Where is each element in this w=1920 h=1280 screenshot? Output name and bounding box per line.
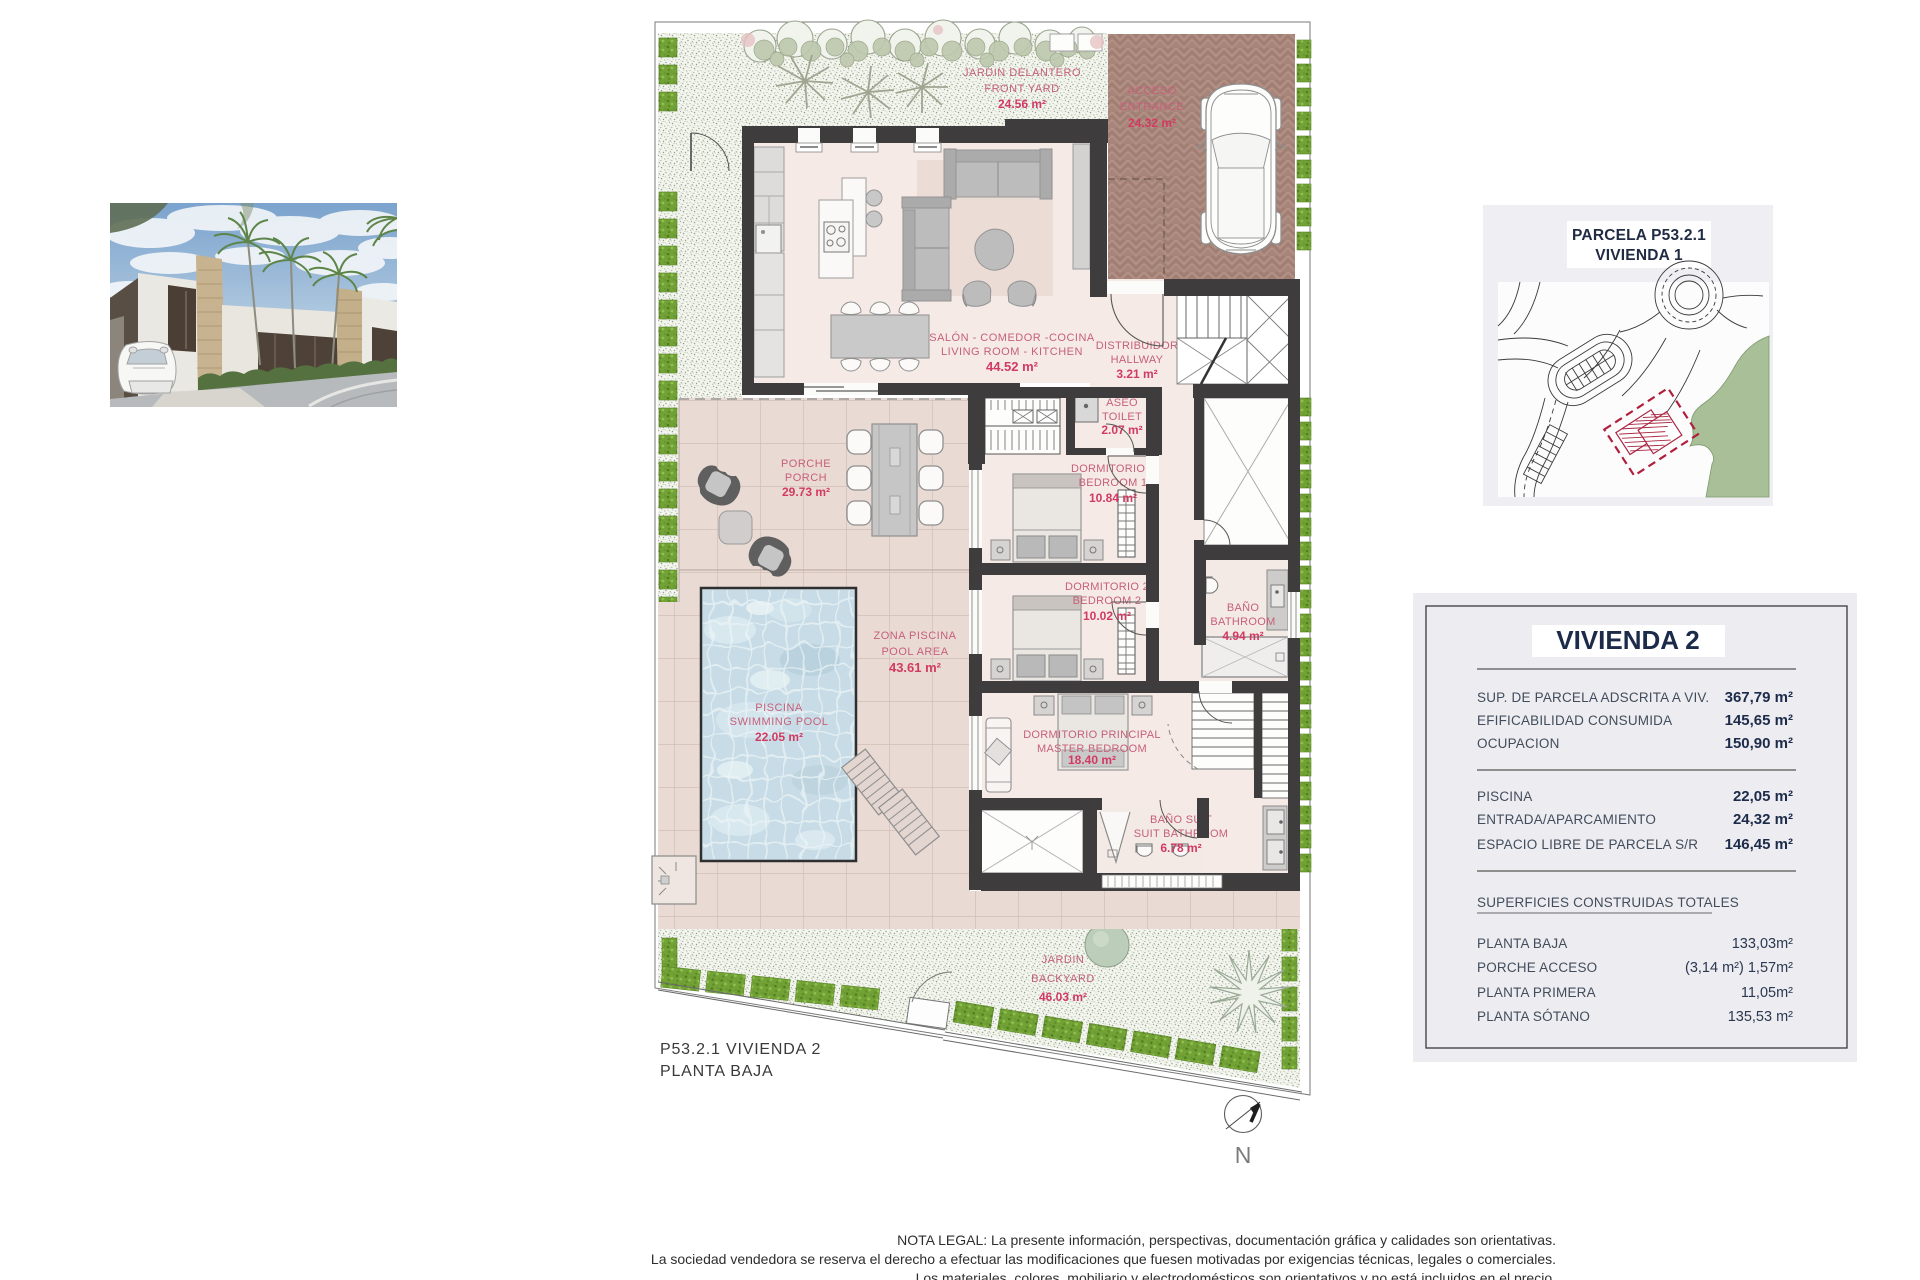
- svg-text:SUP. DE PARCELA ADSCRITA A VIV: SUP. DE PARCELA ADSCRITA A VIV.: [1477, 690, 1709, 705]
- svg-text:PISCINA: PISCINA: [1477, 789, 1532, 804]
- svg-text:EFIFICABILIDAD CONSUMIDA: EFIFICABILIDAD CONSUMIDA: [1477, 713, 1672, 728]
- svg-text:N: N: [1235, 1142, 1252, 1168]
- svg-text:La sociedad vendedora se reser: La sociedad vendedora se reserva el dere…: [651, 1251, 1556, 1267]
- svg-text:146,45 m²: 146,45 m²: [1725, 836, 1793, 853]
- svg-text:24.32 m²: 24.32 m²: [1128, 116, 1176, 130]
- svg-text:(3,14 m²) 1,57m²: (3,14 m²) 1,57m²: [1685, 960, 1793, 976]
- svg-text:BATHROOM: BATHROOM: [1210, 616, 1275, 628]
- svg-text:4.94 m²: 4.94 m²: [1222, 629, 1263, 643]
- svg-text:PLANTA PRIMERA: PLANTA PRIMERA: [1477, 985, 1596, 1000]
- svg-text:2.07 m²: 2.07 m²: [1101, 423, 1142, 437]
- svg-text:PARCELA P53.2.1: PARCELA P53.2.1: [1572, 227, 1706, 244]
- svg-text:6.78 m²: 6.78 m²: [1160, 841, 1201, 855]
- svg-text:133,03m²: 133,03m²: [1732, 936, 1793, 952]
- svg-text:44.52 m²: 44.52 m²: [986, 359, 1039, 374]
- svg-text:11,05m²: 11,05m²: [1741, 985, 1793, 1001]
- svg-text:NOTA LEGAL: La presente inform: NOTA LEGAL: La presente información, per…: [897, 1232, 1556, 1248]
- svg-text:135,53 m²: 135,53 m²: [1728, 1009, 1793, 1025]
- svg-text:367,79 m²: 367,79 m²: [1725, 689, 1793, 706]
- svg-text:ENTRADA/APARCAMIENTO: ENTRADA/APARCAMIENTO: [1477, 812, 1656, 827]
- svg-text:150,90 m²: 150,90 m²: [1725, 735, 1793, 752]
- svg-text:PISCINA: PISCINA: [755, 702, 803, 714]
- svg-text:43.61 m²: 43.61 m²: [889, 660, 942, 675]
- svg-text:POOL AREA: POOL AREA: [881, 646, 948, 658]
- svg-text:HALLWAY: HALLWAY: [1111, 354, 1164, 366]
- svg-text:BEDROOM 1: BEDROOM 1: [1079, 477, 1148, 489]
- svg-text:24.56 m²: 24.56 m²: [998, 97, 1046, 111]
- svg-text:ACCESO: ACCESO: [1127, 85, 1176, 97]
- svg-text:SALÓN - COMEDOR -COCINA: SALÓN - COMEDOR -COCINA: [929, 331, 1095, 344]
- svg-text:LIVING ROOM - KITCHEN: LIVING ROOM - KITCHEN: [941, 346, 1083, 358]
- svg-text:BACKYARD: BACKYARD: [1031, 973, 1095, 985]
- svg-text:FRONT YARD: FRONT YARD: [984, 83, 1059, 95]
- svg-text:PLANTA BAJA: PLANTA BAJA: [1477, 936, 1567, 951]
- svg-text:VIVIENDA 1: VIVIENDA 1: [1595, 247, 1683, 264]
- svg-text:BEDROOM 2: BEDROOM 2: [1073, 595, 1142, 607]
- svg-text:ZONA PISCINA: ZONA PISCINA: [873, 630, 956, 642]
- svg-text:JARDIN DELANTERO: JARDIN DELANTERO: [963, 67, 1081, 79]
- svg-text:ASEO: ASEO: [1106, 397, 1138, 409]
- svg-text:BAÑO: BAÑO: [1227, 601, 1260, 614]
- svg-text:PORCHE: PORCHE: [781, 458, 831, 470]
- svg-text:3.21 m²: 3.21 m²: [1116, 367, 1157, 381]
- svg-text:Los materiales, colores, mobil: Los materiales, colores, mobiliario y el…: [916, 1270, 1556, 1280]
- svg-text:ENTRANCE: ENTRANCE: [1120, 101, 1185, 113]
- svg-text:PORCHE ACCESO: PORCHE ACCESO: [1477, 960, 1597, 975]
- svg-text:TOILET: TOILET: [1102, 411, 1142, 423]
- svg-text:SUIT BATHROOM: SUIT BATHROOM: [1134, 828, 1229, 840]
- svg-text:DISTRIBUIDOR: DISTRIBUIDOR: [1096, 340, 1178, 352]
- svg-text:DORMITORIO PRINCIPAL: DORMITORIO PRINCIPAL: [1023, 729, 1161, 741]
- svg-text:JARDIN: JARDIN: [1042, 954, 1085, 966]
- svg-text:OCUPACION: OCUPACION: [1477, 736, 1560, 751]
- svg-text:29.73 m²: 29.73 m²: [782, 485, 830, 499]
- svg-text:SWIMMING POOL: SWIMMING POOL: [730, 716, 829, 728]
- svg-text:22,05 m²: 22,05 m²: [1733, 788, 1793, 805]
- svg-text:ESPACIO LIBRE DE PARCELA S/R: ESPACIO LIBRE DE PARCELA S/R: [1477, 837, 1698, 852]
- svg-text:PLANTA BAJA: PLANTA BAJA: [660, 1063, 773, 1080]
- svg-text:10.84 m²: 10.84 m²: [1089, 491, 1137, 505]
- svg-text:VIVIENDA 2: VIVIENDA 2: [1556, 625, 1700, 655]
- svg-text:PLANTA SÓTANO: PLANTA SÓTANO: [1477, 1009, 1590, 1024]
- svg-text:DORMITORIO 2: DORMITORIO 2: [1065, 581, 1149, 593]
- svg-text:P53.2.1 VIVIENDA 2: P53.2.1 VIVIENDA 2: [660, 1041, 821, 1058]
- svg-text:PORCH: PORCH: [785, 472, 827, 484]
- svg-text:22.05 m²: 22.05 m²: [755, 730, 803, 744]
- svg-text:18.40 m²: 18.40 m²: [1068, 753, 1116, 767]
- svg-text:46.03 m²: 46.03 m²: [1039, 990, 1087, 1004]
- svg-text:10.02 m²: 10.02 m²: [1083, 609, 1131, 623]
- svg-text:145,65 m²: 145,65 m²: [1725, 712, 1793, 729]
- svg-text:SUPERFICIES CONSTRUIDAS TOTALE: SUPERFICIES CONSTRUIDAS TOTALES: [1477, 895, 1739, 910]
- svg-text:24,32 m²: 24,32 m²: [1733, 811, 1793, 828]
